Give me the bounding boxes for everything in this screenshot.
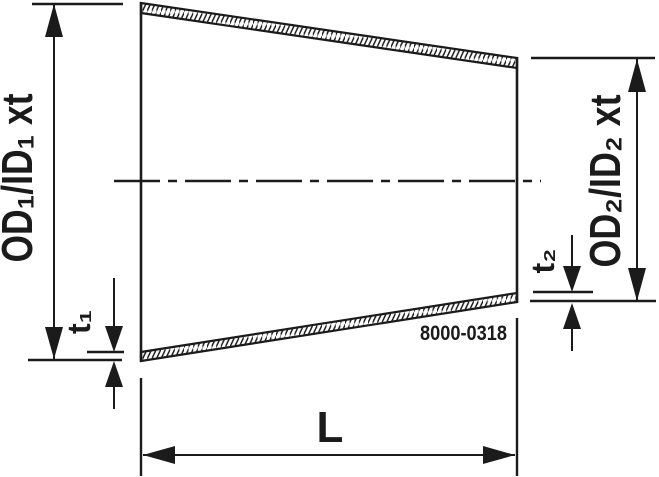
- top-wall-hatched: [141, 3, 517, 68]
- length-arrow-left: [143, 446, 175, 464]
- od1-arrow-up: [45, 4, 63, 37]
- t1-arrow-down: [105, 326, 123, 352]
- od2-arrow-up: [628, 59, 646, 92]
- t2-label: t₂: [525, 249, 561, 274]
- od2-label: OD₂/ID₂ xt: [581, 94, 630, 267]
- od1-label: OD₁/ID₁ xt: [0, 93, 42, 262]
- length-arrow-right: [483, 446, 515, 464]
- technical-drawing: OD₁/ID₁ xt t₁ OD₂/ID₂ xt t₂ L 8000-0318: [0, 0, 659, 477]
- part-code: 8000-0318: [420, 322, 507, 345]
- t1-label: t₁: [61, 310, 97, 334]
- od2-arrow-down: [628, 268, 646, 301]
- t1-arrow-up: [105, 361, 123, 387]
- t2-arrow-up: [563, 303, 581, 329]
- t2-arrow-down: [563, 266, 581, 292]
- drawing-canvas: OD₁/ID₁ xt t₁ OD₂/ID₂ xt t₂ L 8000-0318: [0, 0, 659, 477]
- length-label: L: [317, 403, 344, 452]
